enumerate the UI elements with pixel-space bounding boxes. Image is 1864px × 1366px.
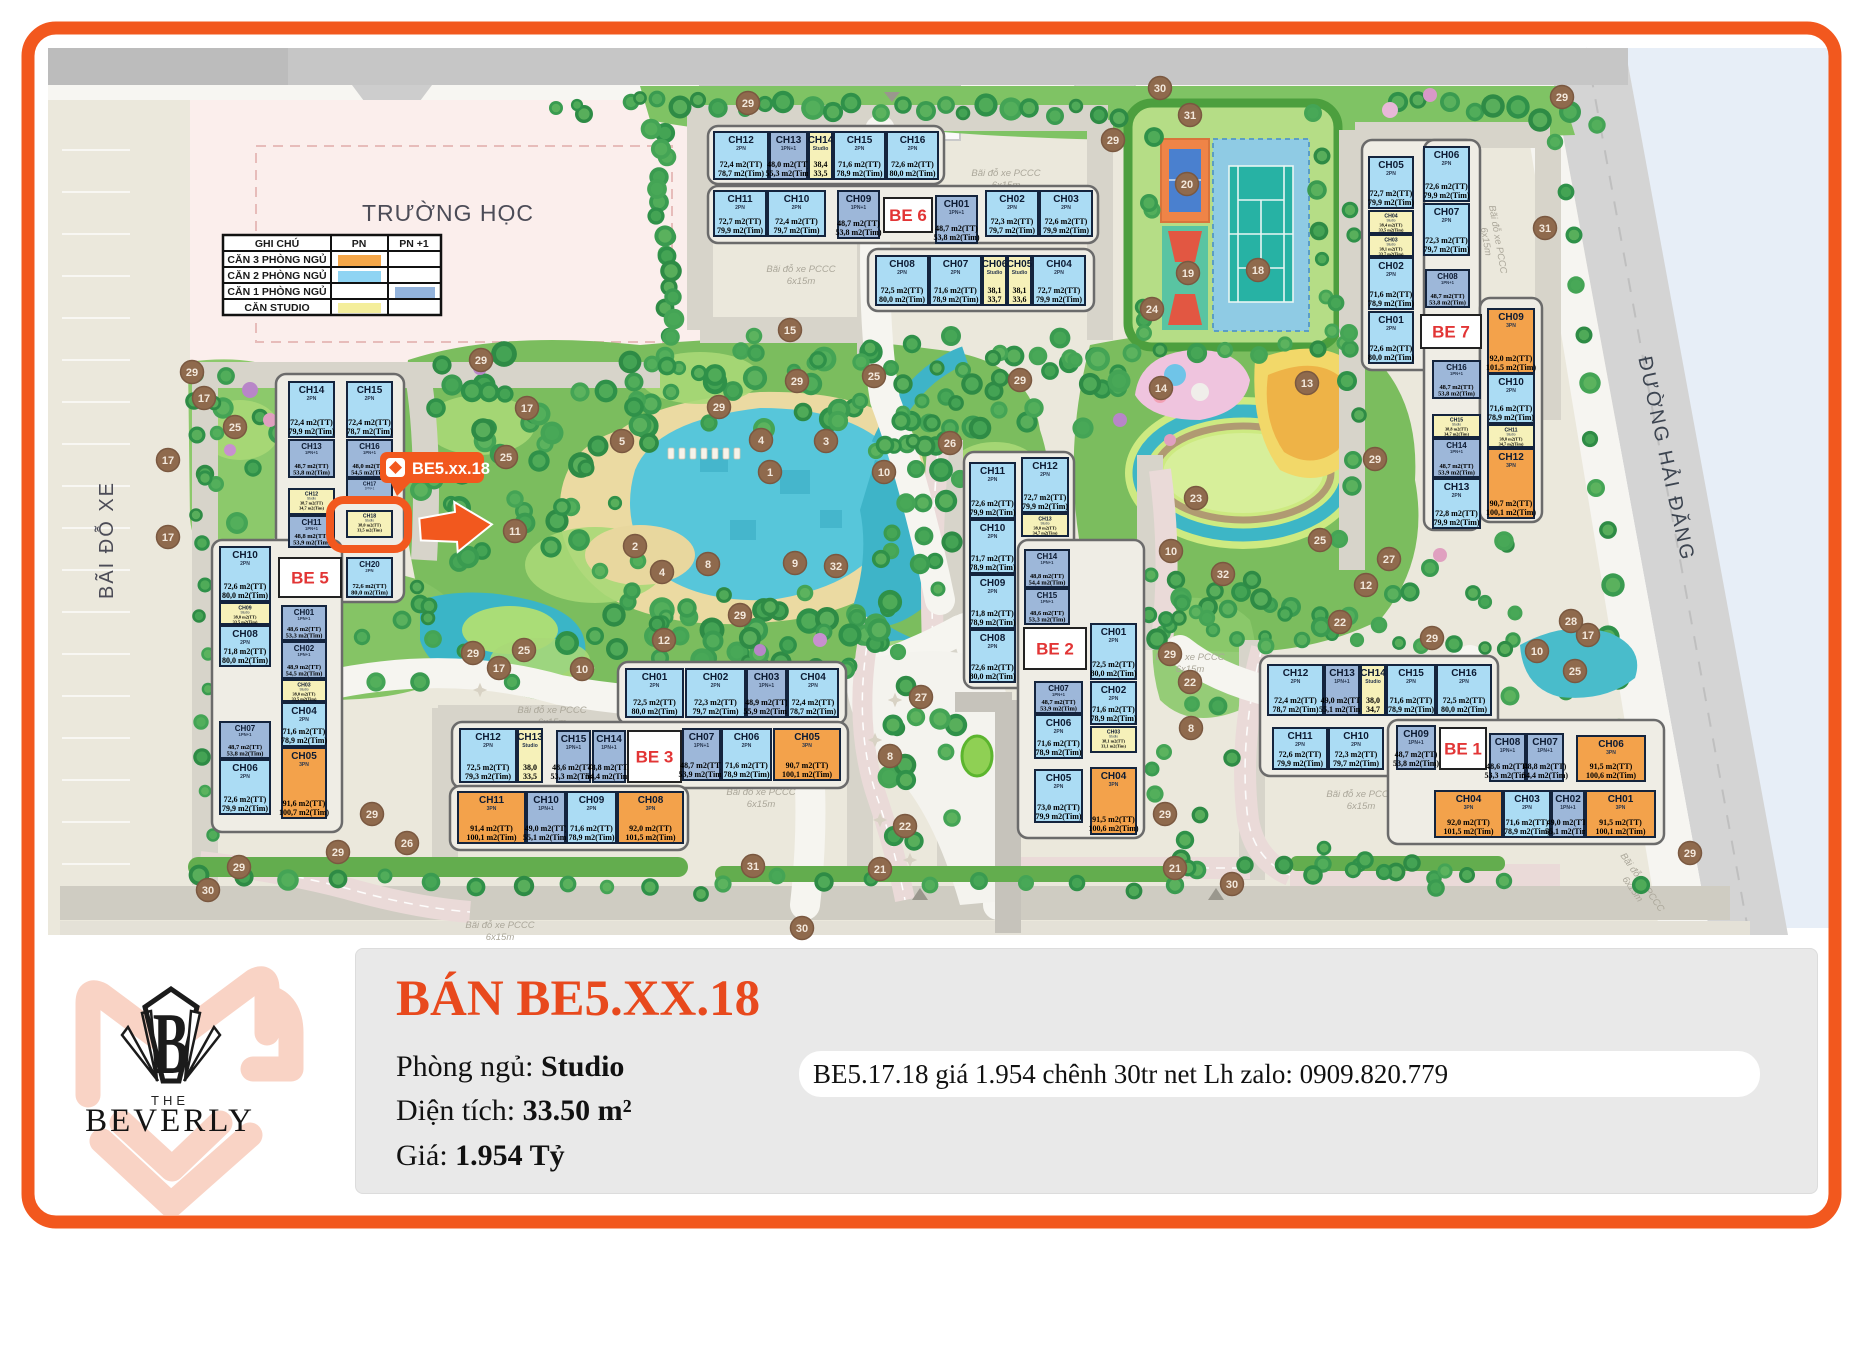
svg-text:CH10: CH10: [232, 550, 258, 561]
svg-text:2PN: 2PN: [365, 568, 373, 573]
svg-text:30: 30: [1226, 879, 1238, 891]
svg-text:CĂN 2 PHÒNG NGỦ: CĂN 2 PHÒNG NGỦ: [227, 269, 326, 282]
svg-text:38,1: 38,1: [1013, 286, 1027, 295]
svg-text:25: 25: [229, 422, 241, 434]
svg-text:CH09: CH09: [846, 194, 872, 205]
svg-text:54,4 m2(Tim): 54,4 m2(Tim): [1522, 771, 1568, 780]
svg-text:91,5 m2(TT): 91,5 m2(TT): [1590, 762, 1633, 771]
svg-text:49,0 m2(TT): 49,0 m2(TT): [1547, 818, 1590, 827]
svg-text:3PN: 3PN: [802, 743, 812, 749]
svg-text:33,5 m2(Tim): 33,5 m2(Tim): [233, 620, 258, 625]
svg-text:29: 29: [332, 847, 344, 859]
svg-text:2PN: 2PN: [1054, 729, 1064, 735]
svg-text:101,5 m2(Tim): 101,5 m2(Tim): [1443, 827, 1493, 836]
svg-text:1PN+1: 1PN+1: [1041, 560, 1055, 565]
svg-text:1PN+1: 1PN+1: [305, 450, 319, 455]
svg-text:34,7: 34,7: [1366, 705, 1380, 714]
svg-text:33,5 m2(Tim): 33,5 m2(Tim): [1379, 228, 1404, 233]
svg-text:79,3 m2(Tim): 79,3 m2(Tim): [465, 772, 511, 781]
svg-text:71,8 m2(TT): 71,8 m2(TT): [224, 647, 267, 656]
svg-text:2PN: 2PN: [240, 640, 250, 646]
svg-text:19: 19: [1182, 268, 1194, 280]
svg-text:34,7 m2(Tim): 34,7 m2(Tim): [1499, 442, 1524, 447]
svg-text:79,9 m2(Tim): 79,9 m2(Tim): [1022, 502, 1068, 511]
svg-text:80,0 m2(Tim): 80,0 m2(Tim): [222, 656, 268, 665]
svg-text:79,9 m2(Tim): 79,9 m2(Tim): [1433, 518, 1479, 527]
svg-text:91,6 m2(TT): 91,6 m2(TT): [283, 799, 326, 808]
svg-text:29: 29: [1556, 92, 1568, 104]
svg-text:80,0 m2(Tim): 80,0 m2(Tim): [1368, 353, 1414, 362]
svg-text:53,9 m2(Tim): 53,9 m2(Tim): [1438, 470, 1475, 477]
svg-text:80,0 m2(Tim): 80,0 m2(Tim): [631, 707, 677, 716]
svg-text:2PN: 2PN: [1295, 742, 1305, 748]
svg-text:30: 30: [1154, 83, 1166, 95]
svg-text:2PN: 2PN: [1442, 161, 1452, 167]
svg-text:4: 4: [659, 567, 666, 579]
svg-text:33,5: 33,5: [523, 772, 537, 781]
svg-text:CH05: CH05: [1378, 160, 1404, 171]
svg-text:54,4 m2(Tim): 54,4 m2(Tim): [586, 772, 632, 781]
svg-text:79,9 m2(Tim): 79,9 m2(Tim): [1277, 759, 1323, 768]
svg-text:CĂN 1 PHÒNG NGỦ: CĂN 1 PHÒNG NGỦ: [227, 285, 326, 298]
svg-text:BÃI ĐỖ XE: BÃI ĐỖ XE: [94, 481, 118, 599]
svg-text:17: 17: [162, 455, 174, 467]
svg-text:CH07: CH07: [943, 259, 969, 270]
svg-text:CH11: CH11: [980, 466, 1005, 477]
svg-text:Studio: Studio: [1365, 679, 1381, 685]
svg-text:100,1 m2(Tim): 100,1 m2(Tim): [466, 833, 516, 842]
svg-text:78,9 m2(Tim): 78,9 m2(Tim): [281, 736, 327, 745]
svg-text:33,5 m2(Tim): 33,5 m2(Tim): [292, 697, 317, 702]
svg-text:CH03: CH03: [754, 672, 780, 683]
svg-text:72,4 m2(TT): 72,4 m2(TT): [1274, 696, 1317, 705]
svg-text:2PN: 2PN: [1040, 472, 1050, 478]
svg-text:CH13: CH13: [776, 135, 802, 146]
svg-text:53,8 m2(Tim): 53,8 m2(Tim): [835, 228, 881, 237]
svg-text:1PN+1: 1PN+1: [1560, 805, 1576, 811]
svg-text:72,5 m2(TT): 72,5 m2(TT): [467, 763, 510, 772]
svg-text:3PN: 3PN: [1109, 782, 1119, 788]
svg-text:29: 29: [742, 98, 754, 110]
svg-text:CH15: CH15: [847, 135, 873, 146]
svg-text:72,8 m2(TT): 72,8 m2(TT): [1435, 509, 1478, 518]
svg-text:92,0 m2(TT): 92,0 m2(TT): [1447, 818, 1490, 827]
svg-text:Studio: Studio: [1012, 270, 1028, 276]
svg-text:48,9 m2(TT): 48,9 m2(TT): [745, 698, 788, 707]
svg-text:CH07: CH07: [1532, 737, 1558, 748]
svg-text:25: 25: [500, 452, 512, 464]
svg-text:34,7 m2(Tim): 34,7 m2(Tim): [299, 506, 324, 511]
svg-text:2PN: 2PN: [735, 205, 745, 211]
svg-text:78,7 m2(Tim): 78,7 m2(Tim): [1272, 705, 1318, 714]
svg-text:Bãi đỗ xe PCCC: Bãi đỗ xe PCCC: [517, 705, 586, 716]
svg-text:53,9 m2(Tim): 53,9 m2(Tim): [1040, 706, 1077, 713]
svg-text:CH13: CH13: [1329, 668, 1355, 679]
svg-text:2PN: 2PN: [1386, 272, 1396, 278]
svg-text:71,6 m2(TT): 71,6 m2(TT): [1490, 404, 1533, 413]
svg-text:30: 30: [202, 885, 214, 897]
svg-text:6x15m: 6x15m: [787, 276, 816, 287]
svg-text:53,3 m2(Tim): 53,3 m2(Tim): [286, 633, 323, 640]
svg-text:100,1 m2(Tim): 100,1 m2(Tim): [782, 770, 832, 779]
svg-text:2PN: 2PN: [483, 743, 493, 749]
svg-text:72,5 m2(TT): 72,5 m2(TT): [633, 698, 676, 707]
svg-text:78,9 m2(Tim): 78,9 m2(Tim): [1090, 714, 1136, 723]
svg-text:CH13: CH13: [1444, 482, 1470, 493]
svg-text:CH15: CH15: [357, 385, 383, 396]
svg-text:55,1 m2(Tim): 55,1 m2(Tim): [1545, 827, 1591, 836]
svg-text:55,1 m2(Tim): 55,1 m2(Tim): [1319, 705, 1365, 714]
svg-text:26: 26: [401, 838, 413, 850]
svg-text:72,3 m2(TT): 72,3 m2(TT): [991, 217, 1034, 226]
svg-text:72,6 m2(TT): 72,6 m2(TT): [224, 582, 267, 591]
svg-text:1PN+1: 1PN+1: [759, 683, 775, 689]
svg-text:CH12: CH12: [475, 732, 501, 743]
svg-text:CH07: CH07: [1434, 207, 1460, 218]
svg-text:3PN: 3PN: [1606, 750, 1616, 756]
svg-text:80,0 m2(Tim): 80,0 m2(Tim): [222, 591, 268, 600]
svg-text:53,8 m2(Tim): 53,8 m2(Tim): [227, 751, 264, 758]
svg-text:72,4 m2(TT): 72,4 m2(TT): [720, 160, 763, 169]
svg-text:1PN+1: 1PN+1: [305, 526, 319, 531]
svg-text:29: 29: [467, 648, 479, 660]
svg-text:CH02: CH02: [703, 672, 729, 683]
svg-text:1PN+1: 1PN+1: [298, 616, 312, 621]
svg-text:1PN+1: 1PN+1: [949, 210, 965, 216]
svg-text:71,6 m2(TT): 71,6 m2(TT): [725, 761, 768, 770]
svg-text:2PN: 2PN: [792, 205, 802, 211]
svg-text:38,0: 38,0: [1366, 696, 1380, 705]
svg-text:32: 32: [1217, 569, 1229, 581]
svg-text:3PN: 3PN: [1464, 805, 1474, 811]
svg-text:33,5: 33,5: [814, 169, 828, 178]
svg-text:CH06: CH06: [1598, 739, 1624, 750]
svg-text:2PN: 2PN: [1007, 205, 1017, 211]
svg-text:29: 29: [366, 809, 378, 821]
svg-text:2PN: 2PN: [1351, 742, 1361, 748]
svg-text:80,0 m2(Tim): 80,0 m2(Tim): [889, 169, 935, 178]
svg-text:CH05: CH05: [794, 732, 820, 743]
svg-text:2PN: 2PN: [587, 806, 597, 812]
svg-text:CH02: CH02: [999, 194, 1025, 205]
svg-text:1PN+1: 1PN+1: [781, 146, 797, 152]
svg-text:78,7 m2(Tim): 78,7 m2(Tim): [790, 707, 836, 716]
svg-text:CH12: CH12: [1283, 668, 1309, 679]
svg-text:25: 25: [1314, 535, 1326, 547]
svg-text:Studio: Studio: [987, 270, 1003, 276]
svg-text:79,9 m2(Tim): 79,9 m2(Tim): [1423, 191, 1469, 200]
svg-text:29: 29: [233, 862, 245, 874]
svg-text:Studio: Studio: [813, 146, 829, 152]
svg-text:31: 31: [1184, 110, 1196, 122]
svg-text:CH06: CH06: [982, 259, 1008, 270]
svg-text:1PN+1: 1PN+1: [1041, 599, 1055, 604]
svg-text:100,1 m2(Tim): 100,1 m2(Tim): [1595, 827, 1645, 836]
svg-text:CH16: CH16: [900, 135, 926, 146]
svg-text:79,9 m2(Tim): 79,9 m2(Tim): [1368, 198, 1414, 207]
svg-text:80,0 m2(Tim): 80,0 m2(Tim): [969, 672, 1015, 681]
svg-text:78,9 m2(Tim): 78,9 m2(Tim): [1504, 827, 1550, 836]
svg-text:CH05: CH05: [1046, 773, 1072, 784]
svg-text:CH10: CH10: [980, 523, 1006, 534]
svg-text:1PN+1: 1PN+1: [1052, 692, 1066, 697]
svg-text:71,8 m2(TT): 71,8 m2(TT): [971, 609, 1014, 618]
svg-text:32: 32: [830, 561, 842, 573]
svg-text:78,9 m2(Tim): 78,9 m2(Tim): [1035, 748, 1081, 757]
svg-text:2PN: 2PN: [240, 774, 250, 780]
svg-text:91,5 m2(TT): 91,5 m2(TT): [1599, 818, 1642, 827]
svg-text:100,6 m2(Tim): 100,6 m2(Tim): [1586, 771, 1636, 780]
svg-text:17: 17: [162, 532, 174, 544]
svg-text:72,6 m2(TT): 72,6 m2(TT): [224, 795, 267, 804]
svg-text:53,8 m2(Tim): 53,8 m2(Tim): [293, 470, 330, 477]
svg-text:2PN: 2PN: [897, 270, 907, 276]
svg-text:92,0 m2(TT): 92,0 m2(TT): [629, 824, 672, 833]
svg-text:CH11: CH11: [479, 795, 504, 806]
svg-text:CH04: CH04: [291, 706, 317, 717]
svg-text:79,9 m2(Tim): 79,9 m2(Tim): [1043, 226, 1089, 235]
svg-text:1PN+1: 1PN+1: [851, 205, 867, 211]
svg-text:1PN+1: 1PN+1: [1334, 679, 1350, 685]
svg-text:72,4 m2(TT): 72,4 m2(TT): [775, 217, 818, 226]
svg-text:71,6 m2(TT): 71,6 m2(TT): [1037, 739, 1080, 748]
svg-text:80,0 m2(Tim): 80,0 m2(Tim): [879, 295, 925, 304]
svg-text:CH08: CH08: [232, 629, 258, 640]
svg-text:78,9 m2(Tim): 78,9 m2(Tim): [969, 618, 1015, 627]
svg-text:72,5 m2(TT): 72,5 m2(TT): [1092, 660, 1135, 669]
svg-text:71,7 m2(TT): 71,7 m2(TT): [971, 554, 1014, 563]
svg-text:1PN+1: 1PN+1: [1441, 280, 1455, 285]
svg-text:72,6 m2(TT): 72,6 m2(TT): [1425, 182, 1468, 191]
svg-text:CH15: CH15: [561, 734, 587, 745]
svg-text:72,6 m2(TT): 72,6 m2(TT): [971, 663, 1014, 672]
svg-text:72,4 m2(TT): 72,4 m2(TT): [792, 698, 835, 707]
svg-text:CH01: CH01: [1608, 794, 1634, 805]
svg-text:CH02: CH02: [1378, 261, 1404, 272]
svg-text:79,7 m2(Tim): 79,7 m2(Tim): [989, 226, 1035, 235]
svg-text:6x15m: 6x15m: [747, 799, 776, 810]
svg-text:CH09: CH09: [1403, 729, 1429, 740]
svg-text:101,5 m2(Tim): 101,5 m2(Tim): [625, 833, 675, 842]
svg-text:33,7: 33,7: [988, 295, 1002, 304]
svg-text:29: 29: [1684, 848, 1696, 860]
svg-text:1PN+1: 1PN+1: [363, 450, 377, 455]
svg-text:53,8 m2(Tim): 53,8 m2(Tim): [1393, 759, 1439, 768]
svg-text:Bãi đỗ xe PCCC: Bãi đỗ xe PCCC: [766, 264, 835, 275]
svg-text:1PN+1: 1PN+1: [601, 745, 617, 751]
svg-text:1PN+1: 1PN+1: [1537, 748, 1553, 754]
svg-text:CH10: CH10: [784, 194, 810, 205]
svg-text:2PN: 2PN: [299, 717, 309, 723]
svg-text:29: 29: [1426, 633, 1438, 645]
svg-text:CH12: CH12: [728, 135, 754, 146]
svg-text:CH02: CH02: [1555, 794, 1581, 805]
svg-text:23: 23: [1190, 493, 1202, 505]
svg-text:29: 29: [475, 355, 487, 367]
svg-text:CH07: CH07: [689, 732, 715, 743]
svg-text:2PN: 2PN: [1506, 388, 1516, 394]
svg-text:10: 10: [878, 467, 890, 479]
svg-text:78,9 m2(Tim): 78,9 m2(Tim): [1388, 705, 1434, 714]
svg-text:79,7 m2(Tim): 79,7 m2(Tim): [773, 226, 819, 235]
svg-text:38,1: 38,1: [988, 286, 1002, 295]
svg-text:33,5 m2(Tim): 33,5 m2(Tim): [357, 528, 382, 533]
svg-text:CH14: CH14: [808, 135, 834, 146]
svg-text:80,0 m2(Tim): 80,0 m2(Tim): [1441, 705, 1487, 714]
svg-text:2PN: 2PN: [742, 743, 752, 749]
svg-text:78,9 m2(Tim): 78,9 m2(Tim): [969, 563, 1015, 572]
svg-text:30: 30: [796, 923, 808, 935]
svg-text:2PN: 2PN: [1061, 205, 1071, 211]
svg-text:2PN: 2PN: [951, 270, 961, 276]
svg-text:Bãi đỗ xe PCCC: Bãi đỗ xe PCCC: [971, 168, 1040, 179]
svg-text:2PN: 2PN: [988, 644, 998, 650]
svg-text:2PN: 2PN: [1452, 493, 1462, 499]
svg-text:11: 11: [509, 526, 521, 538]
svg-text:72,6 m2(TT): 72,6 m2(TT): [1045, 217, 1088, 226]
svg-text:1PN+1: 1PN+1: [566, 745, 582, 751]
svg-text:100,7 m2(Tim): 100,7 m2(Tim): [279, 808, 329, 817]
svg-text:38,0: 38,0: [523, 763, 537, 772]
svg-text:29: 29: [1369, 454, 1381, 466]
svg-text:CH11: CH11: [1287, 731, 1312, 742]
svg-text:BE 5: BE 5: [291, 569, 329, 588]
svg-text:48,7 m2(TT): 48,7 m2(TT): [935, 224, 978, 233]
svg-text:B: B: [153, 995, 189, 1092]
svg-text:53,9 m2(Tim): 53,9 m2(Tim): [293, 540, 330, 547]
svg-text:CH08: CH08: [1495, 737, 1521, 748]
svg-text:13: 13: [1301, 378, 1313, 390]
svg-text:78,9 m2(Tim): 78,9 m2(Tim): [723, 770, 769, 779]
svg-text:CH06: CH06: [232, 763, 258, 774]
svg-text:2PN: 2PN: [1442, 218, 1452, 224]
svg-text:73,0 m2(TT): 73,0 m2(TT): [1037, 803, 1080, 812]
svg-text:72,3 m2(TT): 72,3 m2(TT): [694, 698, 737, 707]
svg-text:72,7 m2(TT): 72,7 m2(TT): [1024, 493, 1067, 502]
svg-text:CH04: CH04: [1101, 771, 1127, 782]
svg-text:3PN: 3PN: [646, 806, 656, 812]
svg-text:33,6: 33,6: [1013, 295, 1027, 304]
svg-text:101,5 m2(Tim): 101,5 m2(Tim): [1486, 363, 1536, 372]
svg-text:Bãi đỗ xe PCCC: Bãi đỗ xe PCCC: [1326, 789, 1395, 800]
svg-text:78,9 m2(Tim): 78,9 m2(Tim): [932, 295, 978, 304]
svg-text:2PN: 2PN: [1054, 270, 1064, 276]
svg-text:CH03: CH03: [1053, 194, 1079, 205]
svg-text:CH04: CH04: [800, 672, 826, 683]
svg-text:CH10: CH10: [1343, 731, 1369, 742]
svg-text:71,6 m2(TT): 71,6 m2(TT): [1390, 696, 1433, 705]
svg-text:79,9 m2(Tim): 79,9 m2(Tim): [222, 804, 268, 813]
svg-text:CH08: CH08: [889, 259, 915, 270]
svg-text:CH16: CH16: [1451, 668, 1477, 679]
svg-text:CH04: CH04: [1046, 259, 1072, 270]
svg-text:9: 9: [792, 558, 798, 570]
svg-text:20: 20: [1181, 179, 1193, 191]
svg-text:78,7 m2(Tim): 78,7 m2(Tim): [718, 169, 764, 178]
svg-text:2PN: 2PN: [240, 561, 250, 567]
svg-text:14: 14: [1155, 383, 1168, 395]
svg-text:53,8 m2(Tim): 53,8 m2(Tim): [1438, 391, 1475, 398]
svg-text:2PN: 2PN: [988, 534, 998, 540]
svg-text:2PN: 2PN: [1406, 679, 1416, 685]
svg-text:CH06: CH06: [734, 732, 760, 743]
svg-text:2PN: 2PN: [711, 683, 721, 689]
svg-text:CĂN STUDIO: CĂN STUDIO: [244, 301, 309, 314]
svg-text:78,7 m2(Tim): 78,7 m2(Tim): [346, 427, 392, 436]
svg-text:72,5 m2(TT): 72,5 m2(TT): [1443, 696, 1486, 705]
svg-text:72,6 m2(TT): 72,6 m2(TT): [1370, 344, 1413, 353]
svg-text:53,9 m2(Tim): 53,9 m2(Tim): [678, 770, 724, 779]
svg-text:3PN: 3PN: [1506, 463, 1516, 469]
svg-text:22: 22: [1184, 677, 1196, 689]
svg-text:100,1 m2(Tim): 100,1 m2(Tim): [1486, 508, 1536, 517]
svg-text:78,9 m2(Tim): 78,9 m2(Tim): [1488, 413, 1534, 422]
svg-text:10: 10: [1165, 546, 1177, 558]
svg-text:1PN+1: 1PN+1: [1408, 740, 1424, 746]
svg-text:CH12: CH12: [1032, 461, 1058, 472]
svg-text:2PN: 2PN: [307, 396, 317, 402]
svg-text:PN: PN: [352, 238, 367, 250]
svg-text:17: 17: [493, 663, 505, 675]
svg-text:25: 25: [518, 645, 530, 657]
svg-text:2: 2: [632, 541, 638, 553]
svg-text:2PN: 2PN: [1386, 326, 1396, 332]
svg-text:CH09: CH09: [1498, 312, 1524, 323]
svg-text:29: 29: [1164, 649, 1176, 661]
svg-text:71,6 m2(TT): 71,6 m2(TT): [934, 286, 977, 295]
svg-text:29: 29: [791, 376, 803, 388]
svg-text:5: 5: [619, 436, 625, 448]
svg-text:22: 22: [899, 821, 911, 833]
svg-text:8: 8: [705, 559, 711, 571]
svg-text:22: 22: [1334, 617, 1346, 629]
svg-text:10: 10: [576, 664, 588, 676]
svg-text:21: 21: [874, 864, 886, 876]
svg-text:78,9 m2(Tim): 78,9 m2(Tim): [568, 833, 614, 842]
svg-text:2PN: 2PN: [855, 146, 865, 152]
svg-text:CH10: CH10: [1498, 377, 1524, 388]
svg-text:1PN+1: 1PN+1: [694, 743, 710, 749]
svg-text:8: 8: [887, 751, 893, 763]
svg-text:48,7 m2(TT): 48,7 m2(TT): [680, 761, 723, 770]
svg-text:26: 26: [944, 438, 956, 450]
svg-text:15: 15: [784, 325, 796, 337]
svg-text:12: 12: [658, 635, 670, 647]
svg-text:79,7 m2(Tim): 79,7 m2(Tim): [1333, 759, 1379, 768]
svg-text:6x15m: 6x15m: [1347, 801, 1376, 812]
svg-text:2PN: 2PN: [365, 396, 375, 402]
svg-text:3PN: 3PN: [1616, 805, 1626, 811]
svg-text:10: 10: [1531, 646, 1543, 658]
svg-text:27: 27: [915, 692, 927, 704]
svg-text:GHI CHÚ: GHI CHÚ: [255, 237, 299, 250]
svg-text:CH08: CH08: [980, 633, 1006, 644]
svg-text:1PN+1: 1PN+1: [1500, 748, 1516, 754]
svg-text:48,7 m2(TT): 48,7 m2(TT): [837, 219, 880, 228]
svg-text:CH14: CH14: [596, 734, 622, 745]
svg-text:79,7 m2(Tim): 79,7 m2(Tim): [1423, 245, 1469, 254]
svg-text:1PN+1: 1PN+1: [365, 487, 375, 491]
svg-text:34,7 m2(Tim): 34,7 m2(Tim): [1444, 432, 1469, 437]
svg-text:2PN: 2PN: [808, 683, 818, 689]
svg-text:33,1 m2(Tim): 33,1 m2(Tim): [1101, 744, 1126, 749]
svg-text:3PN: 3PN: [487, 806, 497, 812]
svg-text:72,7 m2(TT): 72,7 m2(TT): [1038, 286, 1081, 295]
svg-text:CH14: CH14: [299, 385, 325, 396]
svg-text:72,6 m2(TT): 72,6 m2(TT): [1279, 750, 1322, 759]
svg-text:53,3 m2(Tim): 53,3 m2(Tim): [1029, 617, 1066, 624]
svg-text:29: 29: [713, 402, 725, 414]
